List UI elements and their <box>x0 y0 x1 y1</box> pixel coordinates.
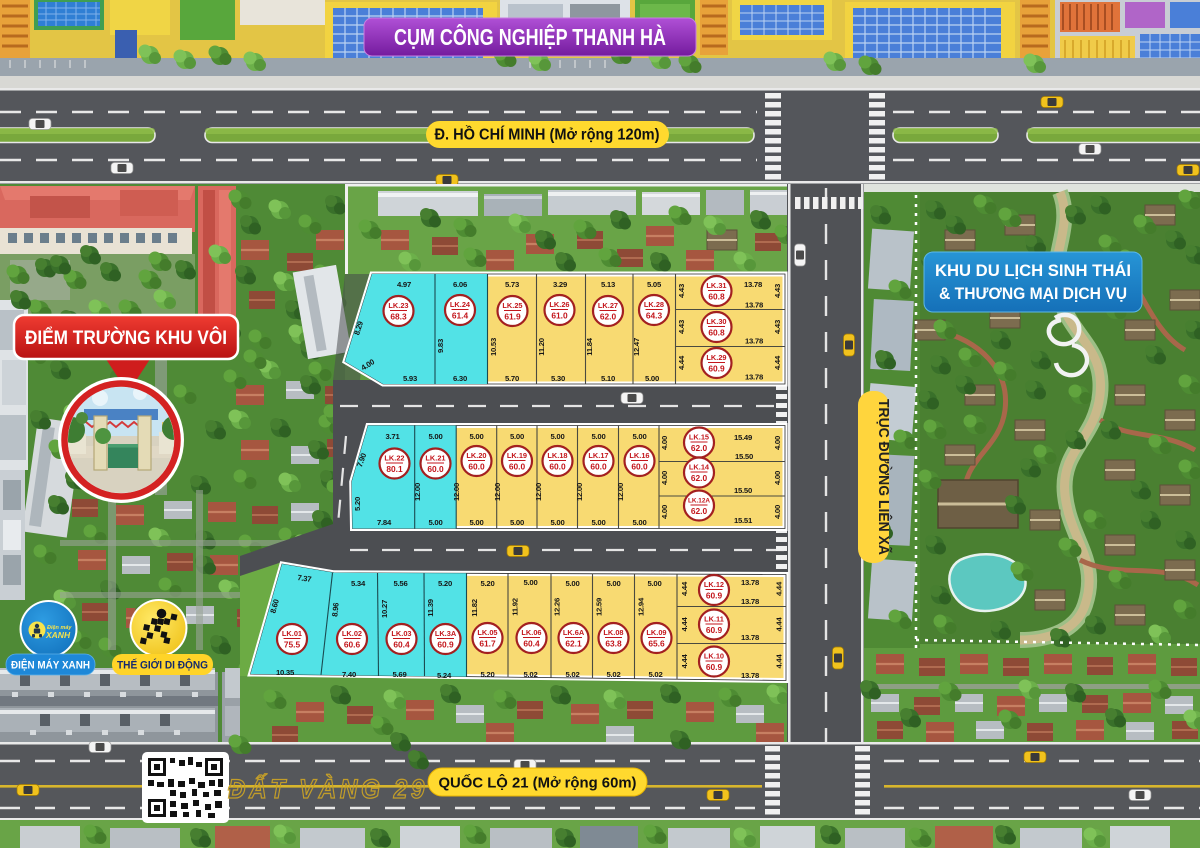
svg-text:ĐẤT VÀNG 29: ĐẤT VÀNG 29 <box>228 773 428 804</box>
svg-text:11.84: 11.84 <box>585 337 594 356</box>
svg-text:10.35: 10.35 <box>276 668 295 677</box>
svg-text:10.27: 10.27 <box>380 600 389 618</box>
svg-text:12.94: 12.94 <box>637 597 646 616</box>
svg-text:75.5: 75.5 <box>284 640 301 650</box>
svg-text:LK.01: LK.01 <box>282 629 302 638</box>
svg-text:LK.19: LK.19 <box>507 451 527 460</box>
svg-text:13.78: 13.78 <box>745 301 764 310</box>
svg-text:LK.3A: LK.3A <box>435 629 457 638</box>
svg-text:12.47: 12.47 <box>632 338 641 356</box>
svg-text:4.43: 4.43 <box>773 284 782 298</box>
svg-text:60.4: 60.4 <box>393 640 410 650</box>
svg-text:60.9: 60.9 <box>706 625 723 635</box>
svg-text:13.78: 13.78 <box>741 578 760 587</box>
svg-text:5.00: 5.00 <box>551 432 565 441</box>
svg-text:60.8: 60.8 <box>708 328 725 338</box>
svg-text:5.00: 5.00 <box>470 518 484 527</box>
svg-text:60.6: 60.6 <box>344 640 361 650</box>
svg-text:XANH: XANH <box>45 630 71 640</box>
svg-text:5.20: 5.20 <box>353 497 362 511</box>
svg-text:12.59: 12.59 <box>595 598 604 616</box>
svg-text:LK.11: LK.11 <box>704 615 724 624</box>
svg-text:61.7: 61.7 <box>479 639 496 649</box>
svg-text:LK.31: LK.31 <box>706 281 726 290</box>
svg-text:12.26: 12.26 <box>553 598 562 616</box>
svg-text:60.8: 60.8 <box>708 292 725 302</box>
svg-text:60.9: 60.9 <box>706 591 723 601</box>
svg-text:LK.30: LK.30 <box>706 317 726 326</box>
svg-text:5.24: 5.24 <box>437 671 452 680</box>
svg-text:60.9: 60.9 <box>708 364 725 374</box>
svg-text:13.78: 13.78 <box>741 671 760 680</box>
svg-text:62.0: 62.0 <box>691 443 708 453</box>
svg-text:5.00: 5.00 <box>607 579 621 588</box>
svg-text:5.00: 5.00 <box>470 432 484 441</box>
svg-text:63.8: 63.8 <box>605 639 622 649</box>
svg-text:4.00: 4.00 <box>660 436 669 450</box>
svg-text:11.20: 11.20 <box>537 338 546 356</box>
svg-text:QUỐC LỘ 21 (Mở rộng 60m): QUỐC LỘ 21 (Mở rộng 60m) <box>439 774 637 792</box>
svg-text:12.00: 12.00 <box>575 483 584 501</box>
svg-text:5.34: 5.34 <box>351 579 366 588</box>
svg-text:5.69: 5.69 <box>393 670 407 679</box>
svg-text:60.0: 60.0 <box>631 462 648 472</box>
svg-text:4.43: 4.43 <box>677 320 686 334</box>
svg-text:4.44: 4.44 <box>775 654 784 669</box>
svg-text:60.0: 60.0 <box>427 464 444 474</box>
svg-text:TRỤC ĐƯỜNG LIÊN XÃ: TRỤC ĐƯỜNG LIÊN XÃ <box>875 399 893 556</box>
svg-text:5.20: 5.20 <box>481 670 495 679</box>
svg-text:THẾ GIỚI DI ĐỘNG: THẾ GIỚI DI ĐỘNG <box>117 659 208 672</box>
svg-text:LK.16: LK.16 <box>629 451 649 460</box>
svg-text:5.13: 5.13 <box>601 280 615 289</box>
svg-text:LK.17: LK.17 <box>588 451 608 460</box>
svg-text:11.82: 11.82 <box>470 599 479 617</box>
svg-text:5.05: 5.05 <box>647 280 662 289</box>
svg-text:5.02: 5.02 <box>607 670 621 679</box>
svg-text:7.37: 7.37 <box>297 573 312 584</box>
svg-text:LK.03: LK.03 <box>391 629 411 638</box>
svg-text:5.73: 5.73 <box>505 280 519 289</box>
svg-text:60.4: 60.4 <box>523 639 540 649</box>
svg-text:LK.10: LK.10 <box>704 652 724 661</box>
svg-text:LK.14: LK.14 <box>689 463 710 472</box>
svg-text:4.00: 4.00 <box>660 505 669 519</box>
svg-text:5.02: 5.02 <box>566 670 580 679</box>
svg-text:5.00: 5.00 <box>429 518 443 527</box>
svg-text:5.00: 5.00 <box>633 518 647 527</box>
svg-text:5.00: 5.00 <box>524 578 538 587</box>
svg-text:4.43: 4.43 <box>773 320 782 334</box>
svg-text:12.00: 12.00 <box>616 483 625 501</box>
svg-text:60.9: 60.9 <box>706 662 723 672</box>
svg-text:13.78: 13.78 <box>745 373 764 382</box>
svg-text:61.9: 61.9 <box>504 312 521 322</box>
svg-text:13.78: 13.78 <box>741 597 760 606</box>
svg-text:& THƯƠNG MẠI DỊCH VỤ: & THƯƠNG MẠI DỊCH VỤ <box>939 285 1127 303</box>
svg-text:LK.18: LK.18 <box>547 451 567 460</box>
svg-text:60.0: 60.0 <box>549 462 566 472</box>
svg-text:4.97: 4.97 <box>397 280 411 289</box>
svg-text:3.29: 3.29 <box>553 280 567 289</box>
svg-text:LK.08: LK.08 <box>603 628 623 637</box>
svg-text:ĐIỆN MÁY XANH: ĐIỆN MÁY XANH <box>11 659 90 672</box>
svg-text:11.92: 11.92 <box>511 598 520 616</box>
svg-text:4.00: 4.00 <box>660 471 669 485</box>
svg-text:13.78: 13.78 <box>741 633 760 642</box>
svg-text:5.20: 5.20 <box>438 579 452 588</box>
svg-text:15.51: 15.51 <box>734 516 753 525</box>
svg-text:LK.22: LK.22 <box>384 454 404 463</box>
svg-text:61.4: 61.4 <box>452 311 469 321</box>
svg-text:4.00: 4.00 <box>773 471 782 485</box>
svg-text:5.00: 5.00 <box>566 579 580 588</box>
svg-text:5.00: 5.00 <box>648 579 662 588</box>
svg-text:5.00: 5.00 <box>592 432 606 441</box>
svg-text:5.00: 5.00 <box>645 374 659 383</box>
svg-text:LK.26: LK.26 <box>549 300 569 309</box>
svg-text:LK.27: LK.27 <box>598 301 618 310</box>
svg-text:12.00: 12.00 <box>413 483 422 501</box>
svg-text:64.3: 64.3 <box>646 311 663 321</box>
svg-text:LK.02: LK.02 <box>342 629 362 638</box>
svg-text:7.40: 7.40 <box>342 670 356 679</box>
svg-text:9.83: 9.83 <box>436 339 445 353</box>
svg-text:6.06: 6.06 <box>453 280 467 289</box>
svg-text:LK.09: LK.09 <box>646 628 666 637</box>
svg-text:4.43: 4.43 <box>677 284 686 298</box>
svg-text:LK.6A: LK.6A <box>563 628 585 637</box>
svg-text:Đ. HỒ CHÍ MINH (Mở rộng 120m): Đ. HỒ CHÍ MINH (Mở rộng 120m) <box>435 126 660 144</box>
svg-text:15.50: 15.50 <box>735 452 753 461</box>
svg-text:4.00: 4.00 <box>773 505 782 519</box>
svg-text:8.96: 8.96 <box>330 602 340 617</box>
svg-text:13.78: 13.78 <box>745 337 764 346</box>
svg-text:12.00: 12.00 <box>534 483 543 501</box>
svg-text:4.44: 4.44 <box>677 355 686 370</box>
svg-text:5.20: 5.20 <box>481 579 495 588</box>
svg-text:15.50: 15.50 <box>734 486 752 495</box>
svg-text:12.00: 12.00 <box>493 483 502 501</box>
svg-text:15.49: 15.49 <box>734 433 752 442</box>
svg-text:4.44: 4.44 <box>680 617 689 632</box>
svg-text:4.44: 4.44 <box>775 617 784 632</box>
svg-text:LK.15: LK.15 <box>689 433 709 442</box>
svg-text:7.84: 7.84 <box>377 518 392 527</box>
svg-text:62.0: 62.0 <box>600 312 617 322</box>
svg-text:60.0: 60.0 <box>468 462 485 472</box>
svg-text:5.56: 5.56 <box>394 579 408 588</box>
svg-text:5.00: 5.00 <box>592 518 606 527</box>
svg-text:4.44: 4.44 <box>680 581 689 596</box>
svg-text:CỤM CÔNG NGHIỆP THANH HÀ: CỤM CÔNG NGHIỆP THANH HÀ <box>394 23 666 50</box>
svg-text:5.10: 5.10 <box>601 374 615 383</box>
svg-text:10.53: 10.53 <box>489 338 498 356</box>
svg-text:LK.12: LK.12 <box>704 580 724 589</box>
svg-text:61.0: 61.0 <box>551 311 568 321</box>
svg-text:11.39: 11.39 <box>426 599 435 617</box>
svg-text:5.00: 5.00 <box>510 518 524 527</box>
svg-text:13.78: 13.78 <box>744 280 763 289</box>
svg-text:65.6: 65.6 <box>648 639 665 649</box>
svg-text:60.0: 60.0 <box>590 462 607 472</box>
svg-text:4.44: 4.44 <box>773 355 782 370</box>
svg-text:5.30: 5.30 <box>551 374 565 383</box>
svg-text:LK.29: LK.29 <box>706 353 726 362</box>
svg-text:68.3: 68.3 <box>390 312 407 322</box>
svg-text:62.0: 62.0 <box>691 473 708 483</box>
svg-text:60.9: 60.9 <box>437 640 454 650</box>
svg-text:4.44: 4.44 <box>680 654 689 669</box>
svg-text:LK.20: LK.20 <box>466 451 486 460</box>
svg-text:62.0: 62.0 <box>691 506 708 516</box>
svg-text:LK.28: LK.28 <box>644 300 664 309</box>
svg-text:6.30: 6.30 <box>453 374 467 383</box>
svg-text:5.02: 5.02 <box>524 670 538 679</box>
svg-text:4.44: 4.44 <box>775 581 784 596</box>
svg-text:5.00: 5.00 <box>551 518 565 527</box>
svg-text:LK.12A: LK.12A <box>688 498 710 505</box>
svg-text:LK.06: LK.06 <box>521 628 541 637</box>
svg-text:4.00: 4.00 <box>773 436 782 450</box>
svg-text:5.70: 5.70 <box>505 374 519 383</box>
svg-text:5.00: 5.00 <box>510 432 524 441</box>
svg-text:KHU DU LỊCH SINH THÁI: KHU DU LỊCH SINH THÁI <box>935 261 1131 280</box>
svg-text:80.1: 80.1 <box>386 464 403 474</box>
svg-text:5.93: 5.93 <box>403 374 417 383</box>
svg-text:12.00: 12.00 <box>452 483 461 501</box>
svg-text:LK.25: LK.25 <box>502 301 522 310</box>
svg-text:ĐIỂM TRƯỜNG KHU VÔI: ĐIỂM TRƯỜNG KHU VÔI <box>25 327 227 349</box>
svg-text:5.02: 5.02 <box>649 670 663 679</box>
svg-text:5.00: 5.00 <box>429 432 443 441</box>
svg-text:LK.24: LK.24 <box>450 300 471 309</box>
svg-text:60.0: 60.0 <box>509 462 526 472</box>
svg-text:5.00: 5.00 <box>633 432 647 441</box>
svg-text:LK.05: LK.05 <box>477 628 497 637</box>
svg-text:LK.23: LK.23 <box>388 301 408 310</box>
svg-text:62.1: 62.1 <box>565 639 582 649</box>
svg-text:LK.21: LK.21 <box>425 454 445 463</box>
svg-text:3.71: 3.71 <box>386 432 401 441</box>
